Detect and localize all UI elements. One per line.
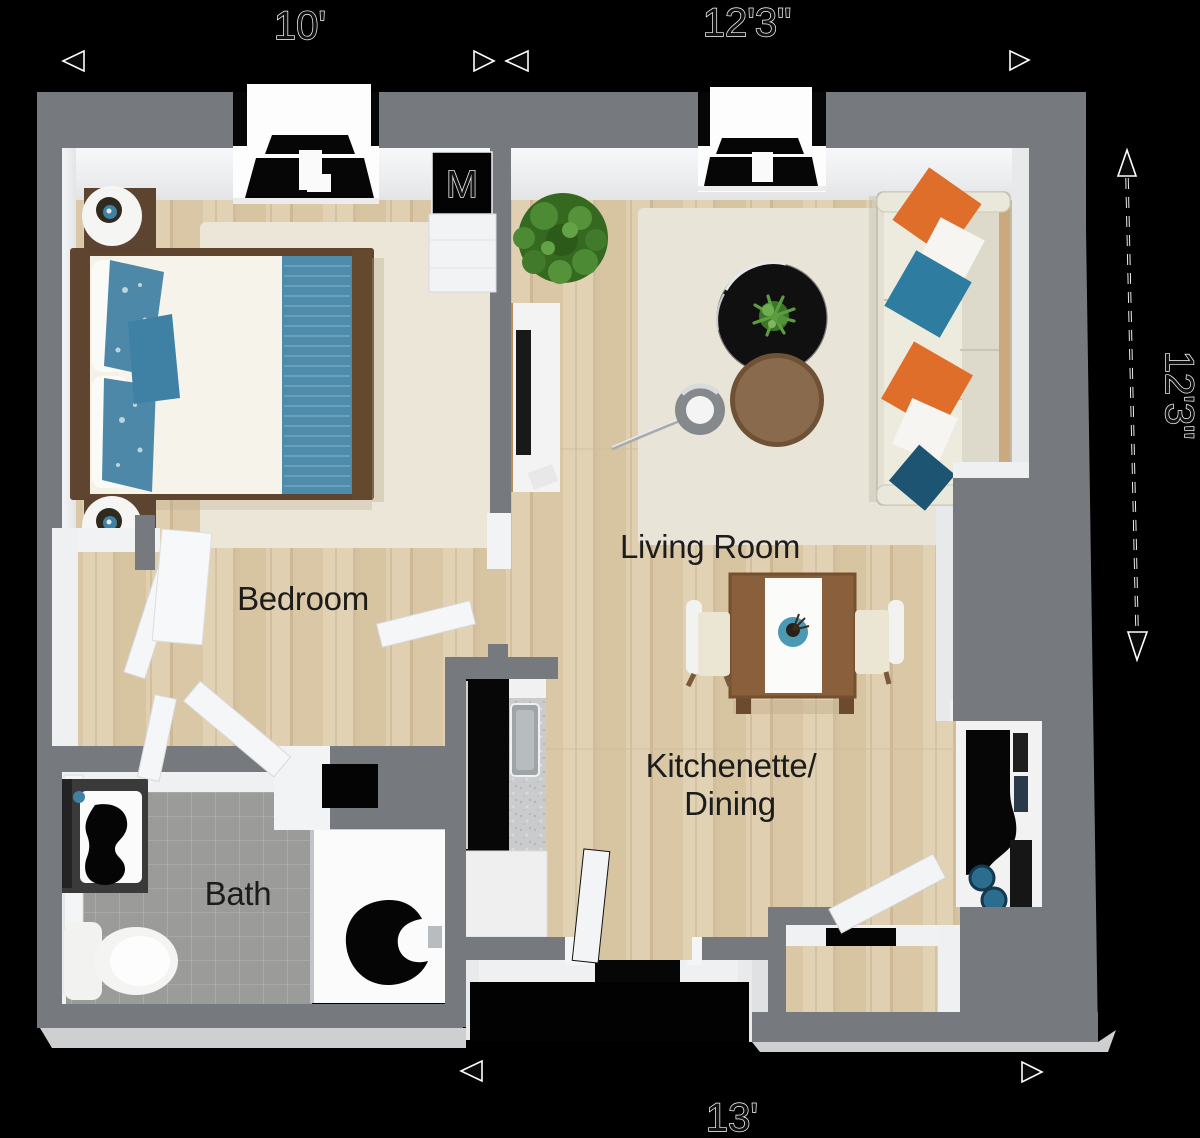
svg-text:10': 10' [274, 4, 326, 48]
svg-text:Kitchenette/: Kitchenette/ [646, 747, 818, 784]
svg-text:Bath: Bath [205, 875, 272, 912]
svg-text:Dining: Dining [684, 785, 776, 822]
svg-text:Bedroom: Bedroom [237, 580, 369, 617]
svg-text:M: M [446, 164, 478, 206]
svg-text:12'3": 12'3" [703, 1, 792, 45]
svg-text:13': 13' [706, 1096, 758, 1138]
svg-text:12'3": 12'3" [1157, 351, 1200, 440]
svg-text:Living Room: Living Room [620, 528, 800, 565]
